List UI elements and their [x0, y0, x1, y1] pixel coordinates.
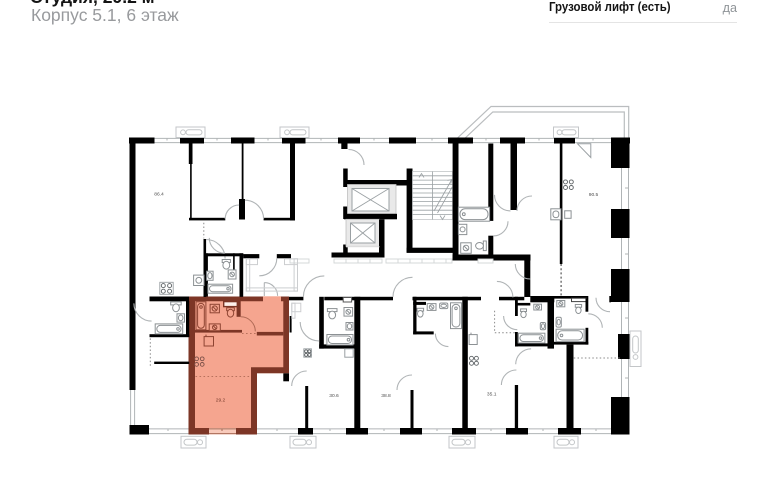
- svg-text:35.1: 35.1: [487, 391, 497, 397]
- svg-text:38.8: 38.8: [381, 393, 391, 399]
- svg-text:86.4: 86.4: [154, 191, 164, 197]
- svg-text:29.2: 29.2: [216, 398, 226, 404]
- svg-text:30.6: 30.6: [329, 393, 339, 399]
- svg-text:90.5: 90.5: [589, 192, 599, 198]
